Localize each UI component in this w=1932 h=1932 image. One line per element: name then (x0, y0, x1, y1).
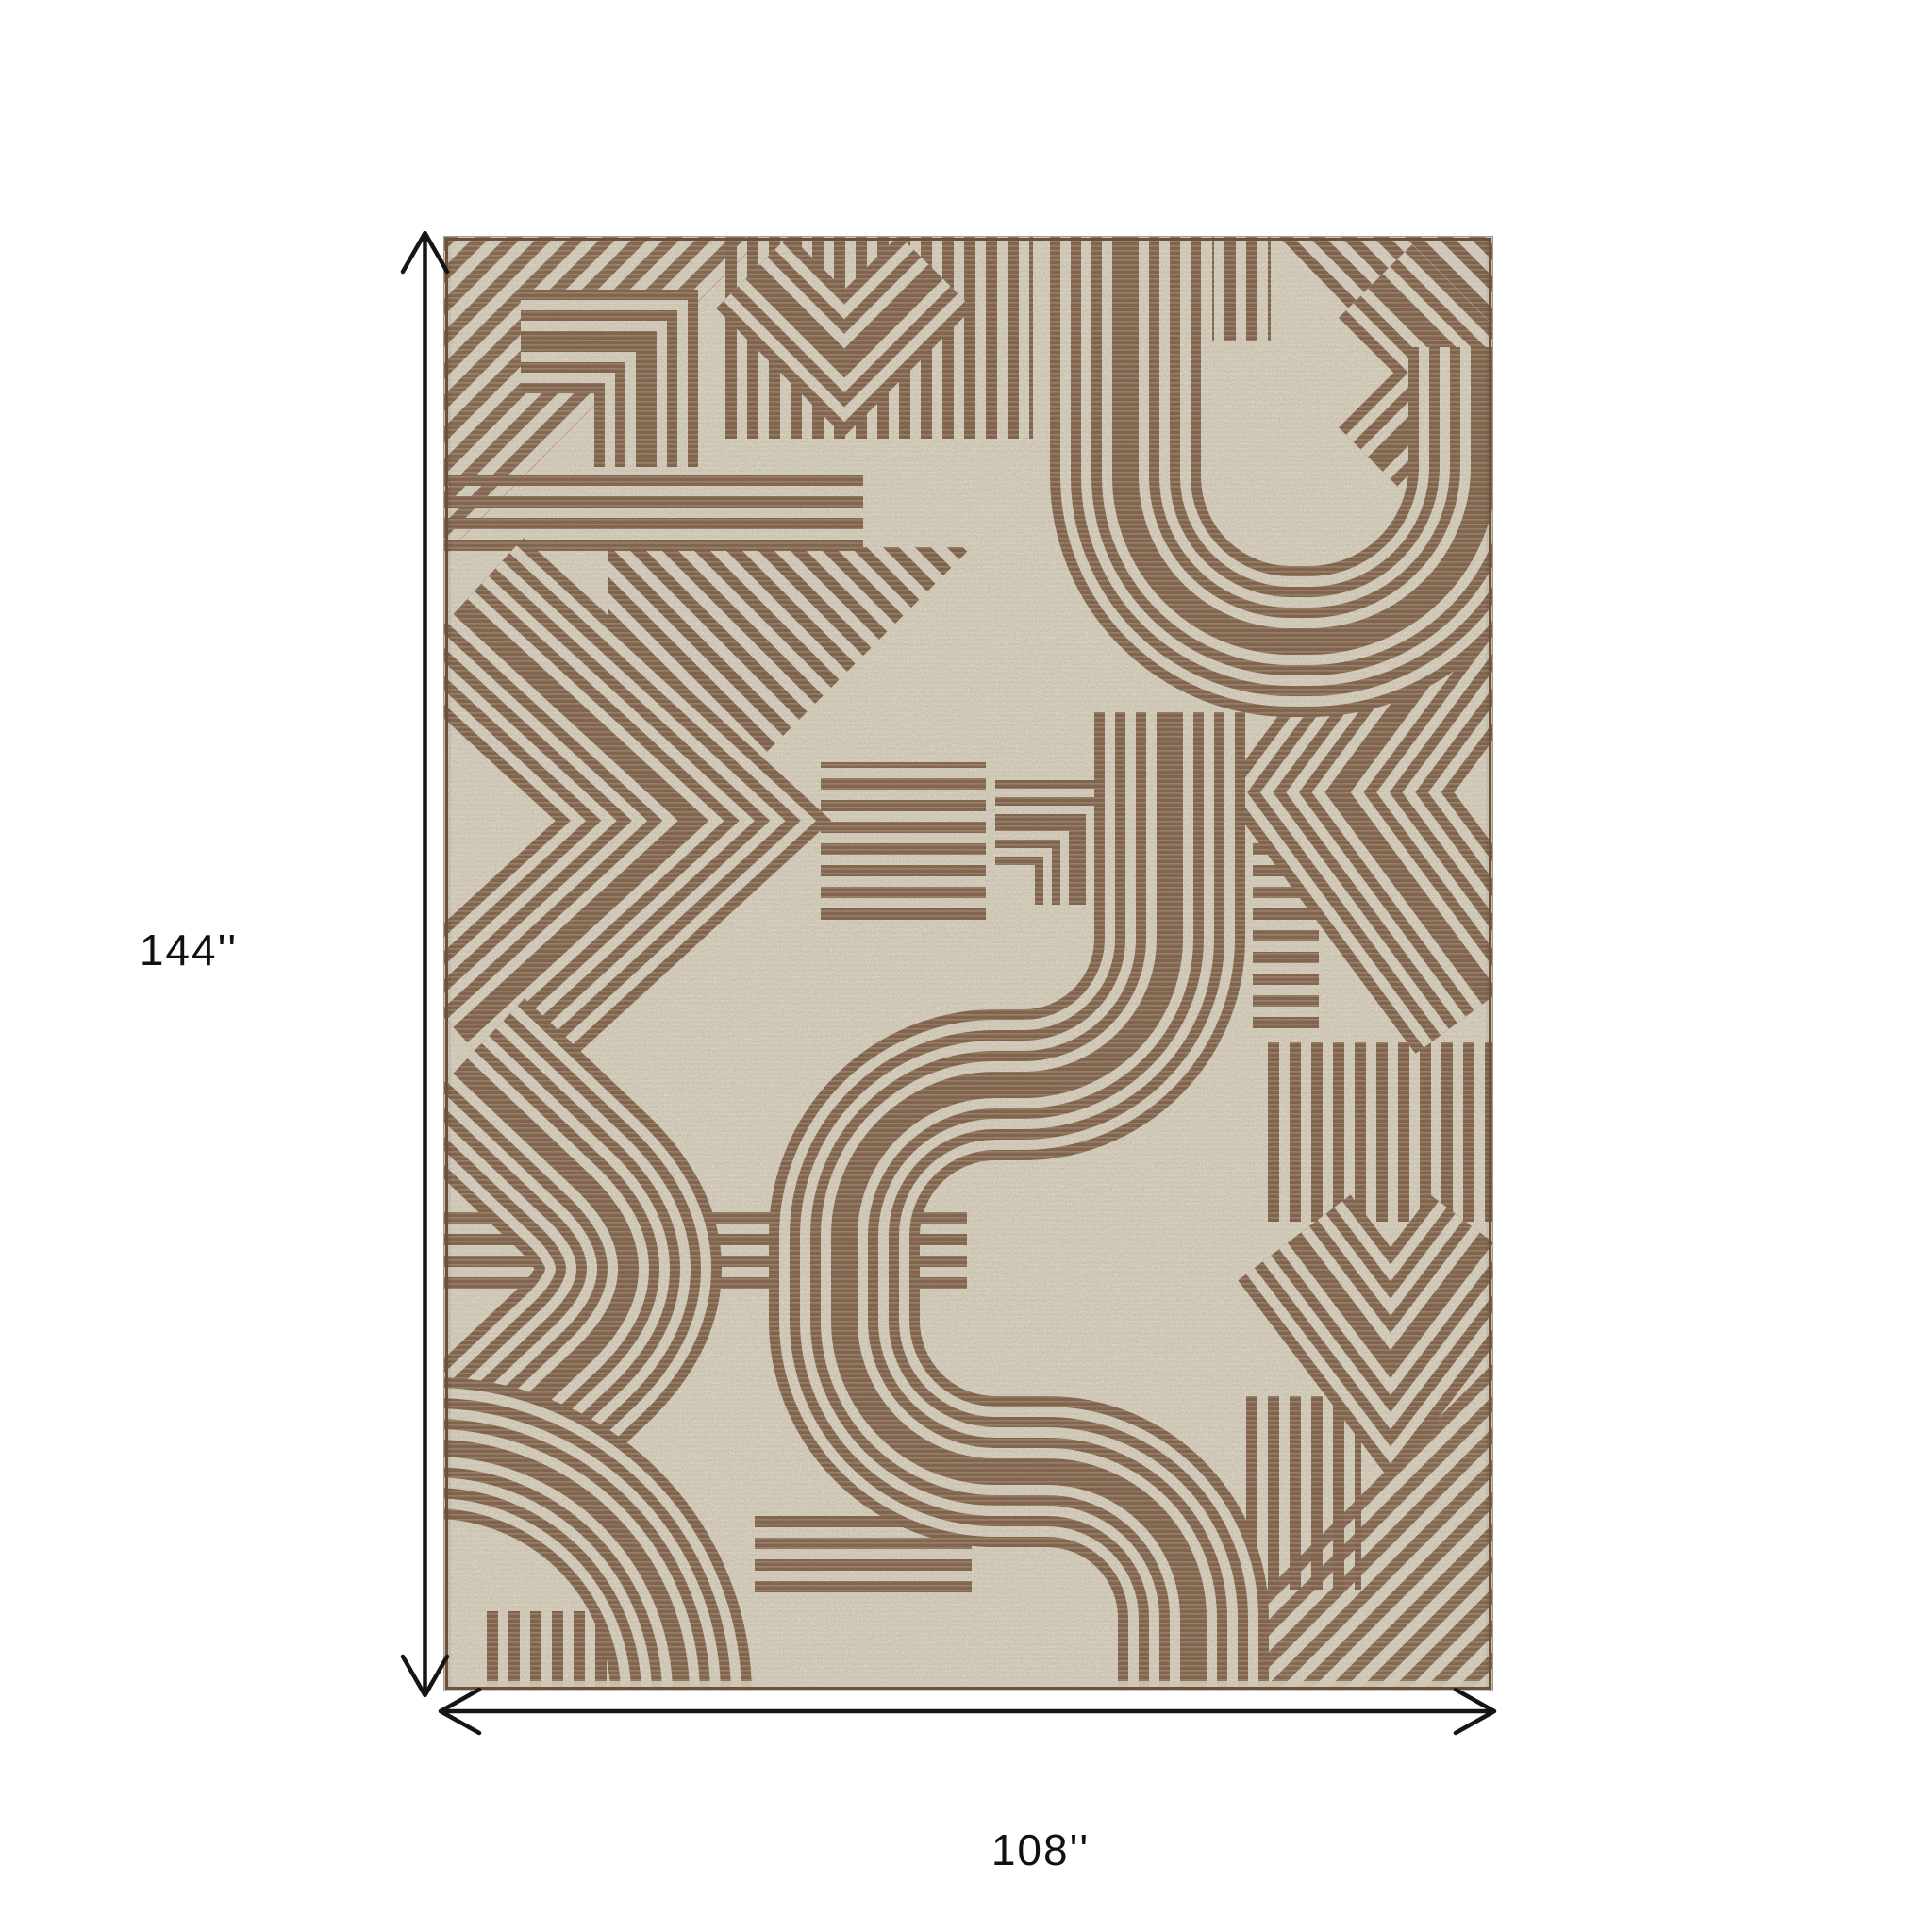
dimension-diagram: 144'' 108'' (0, 0, 1932, 1932)
rug-image (434, 217, 1493, 1707)
rug-and-arrows-canvas (0, 0, 1932, 1932)
width-arrow (441, 1690, 1494, 1733)
width-dimension-label: 108'' (946, 1828, 1135, 1872)
height-arrow (403, 233, 447, 1695)
height-dimension-label: 144'' (94, 928, 283, 972)
rug-grain-texture (443, 236, 1493, 1691)
rug-bottom-binding (443, 1681, 1493, 1691)
